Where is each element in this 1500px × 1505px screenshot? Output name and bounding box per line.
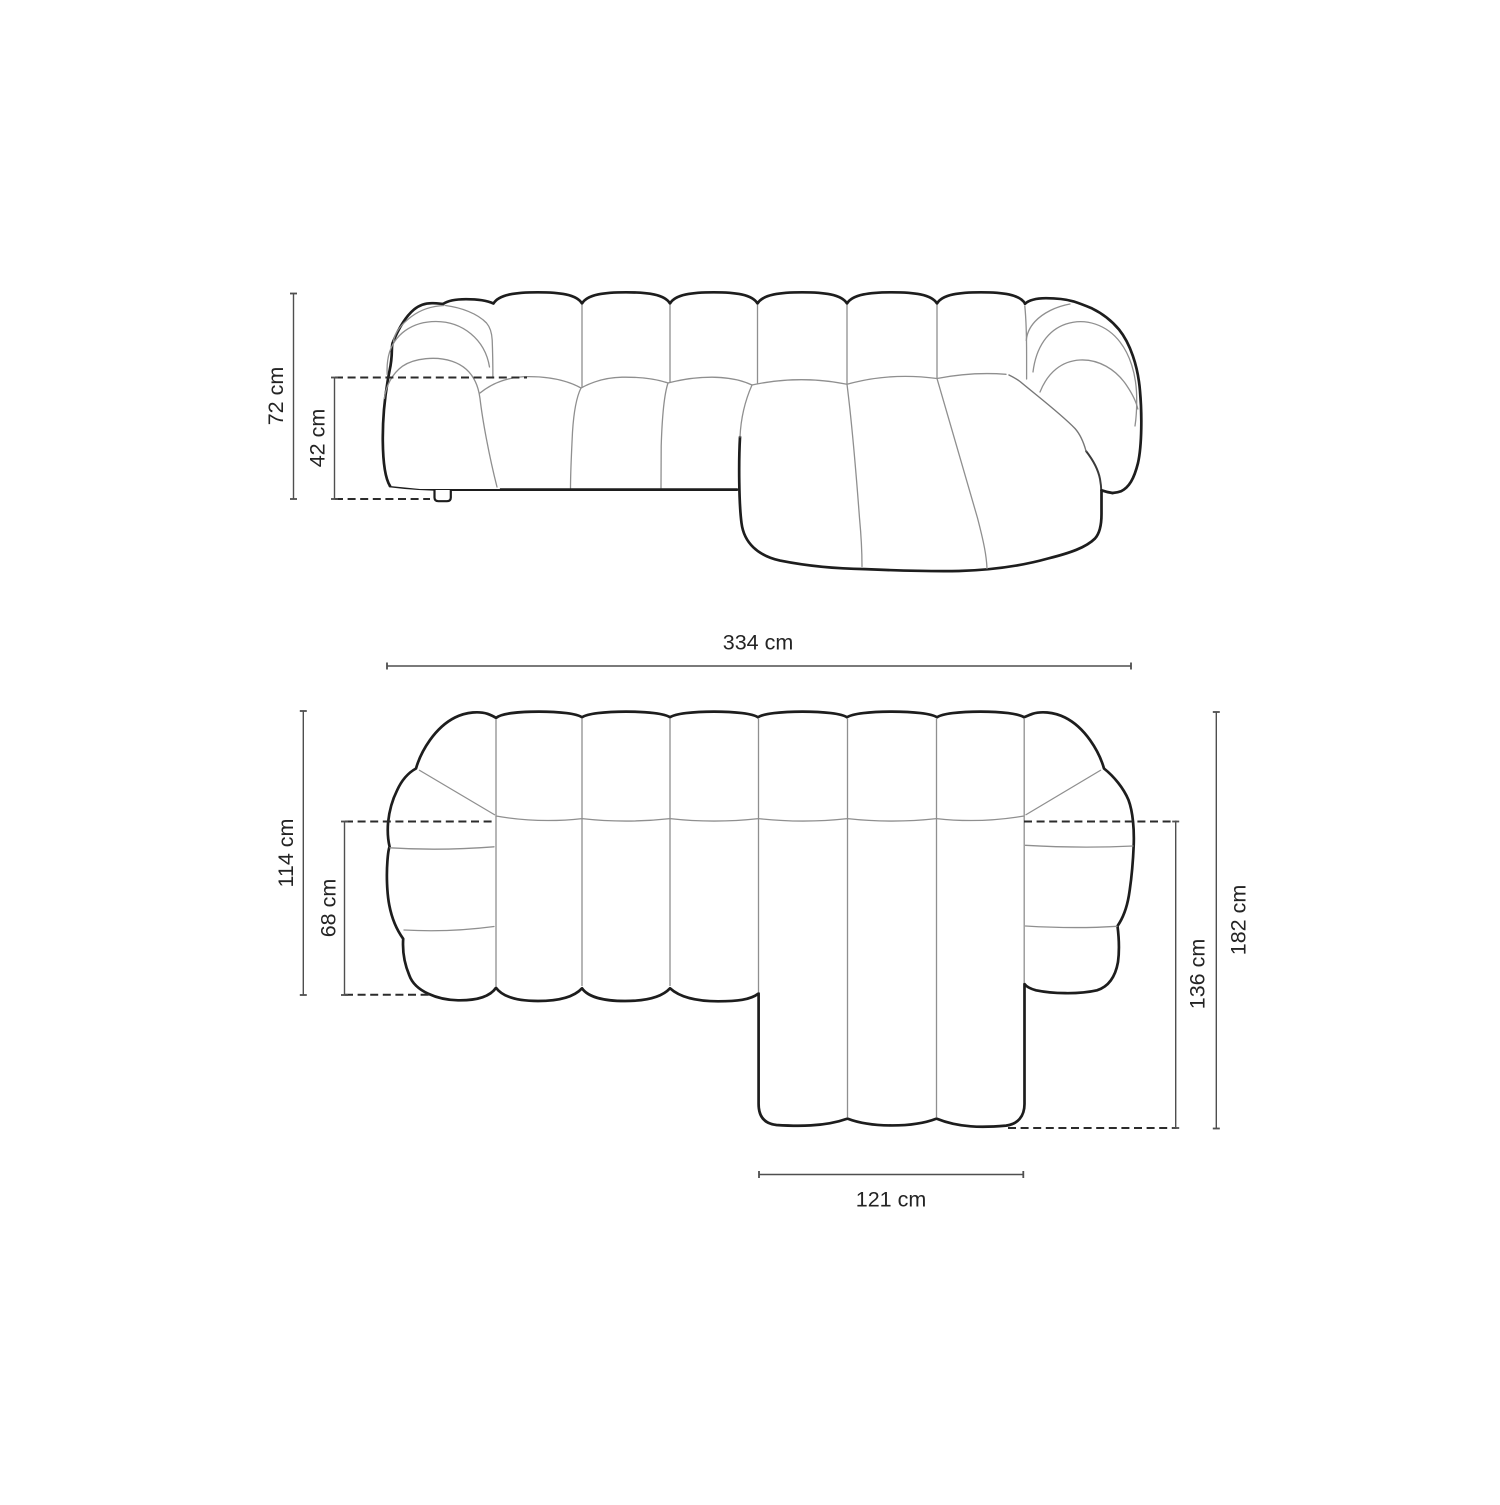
svg-text:334 cm: 334 cm (723, 631, 794, 655)
svg-text:136 cm: 136 cm (1186, 939, 1210, 1010)
svg-text:68 cm: 68 cm (317, 879, 341, 938)
svg-text:114 cm: 114 cm (274, 819, 298, 888)
svg-text:42 cm: 42 cm (306, 409, 330, 468)
svg-text:121 cm: 121 cm (856, 1188, 927, 1212)
svg-text:182 cm: 182 cm (1227, 885, 1251, 956)
svg-text:72 cm: 72 cm (264, 367, 288, 426)
